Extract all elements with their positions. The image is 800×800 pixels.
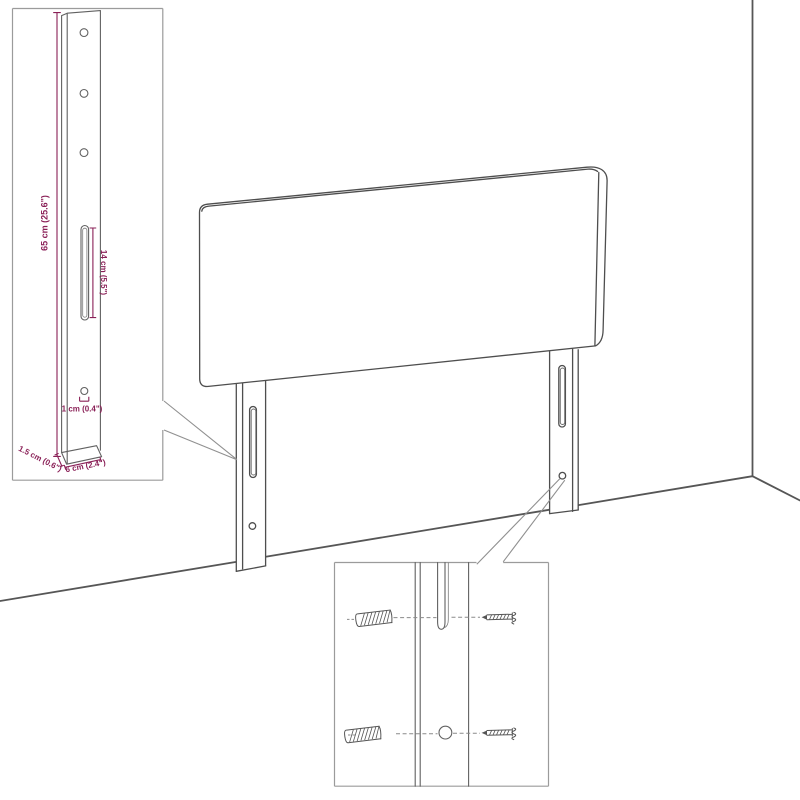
right-leg-slot-inner [560,368,564,425]
panel-right-face-edge [595,173,599,346]
leg-hole-top [80,29,88,37]
hole-dimension-line [80,397,89,401]
alignment-dashes [394,617,481,734]
right-leg-hole [559,472,566,479]
right-leg [550,349,579,513]
height-dimension-line [53,13,61,457]
floor-line-right [753,476,800,500]
hole-closeup [439,726,452,739]
panel-outline [200,167,608,387]
slot-dimension-line [90,228,97,318]
leg-detail-drawing [62,11,102,465]
diagram-svg: 65 cm (25.6") 14 cm (5.5") 1 cm (0.4") 1… [0,0,800,800]
height-dimension-label: 65 cm (25.6") [40,195,50,251]
inset-frame [335,563,549,787]
hole-dimension-label: 1 cm (0.4") [62,405,103,414]
left-leg [236,381,265,571]
leg-slot-inner [83,228,87,317]
dimension-marks: 65 cm (25.6") 14 cm (5.5") 1 cm (0.4") 1… [17,13,108,475]
panel-top-inner-edge [202,169,598,211]
floor-line-left [0,476,753,601]
leg-closeup-edges [415,563,468,787]
wall-plug-top [355,610,392,627]
room-lines [0,0,800,601]
left-leg-hole [249,523,256,530]
leg-hole-bottom [81,388,88,395]
plug-guide-dashes [347,619,356,735]
leg-hole-middle [80,90,88,98]
left-leg-bottom-edge [236,566,265,571]
screw-top [482,612,516,624]
product-diagram: 65 cm (25.6") 14 cm (5.5") 1 cm (0.4") 1… [0,0,800,800]
mounting-leg-drawing [415,563,468,787]
fasteners [344,610,516,743]
screw-bottom [482,728,516,740]
callout-right [477,479,565,564]
leg-slot [81,226,89,321]
left-leg-slot-inner [251,409,256,475]
headboard-panel [200,167,608,387]
leg-detail-inset: 65 cm (25.6") 14 cm (5.5") 1 cm (0.4") 1… [13,9,163,481]
right-leg-bottom-edge [550,510,579,514]
leg-hole-third [80,149,88,157]
mounting-detail-inset [335,563,549,787]
callout-left [164,401,237,460]
slot-dimension-label: 14 cm (5.5") [99,250,108,295]
slot-closeup [438,563,445,630]
